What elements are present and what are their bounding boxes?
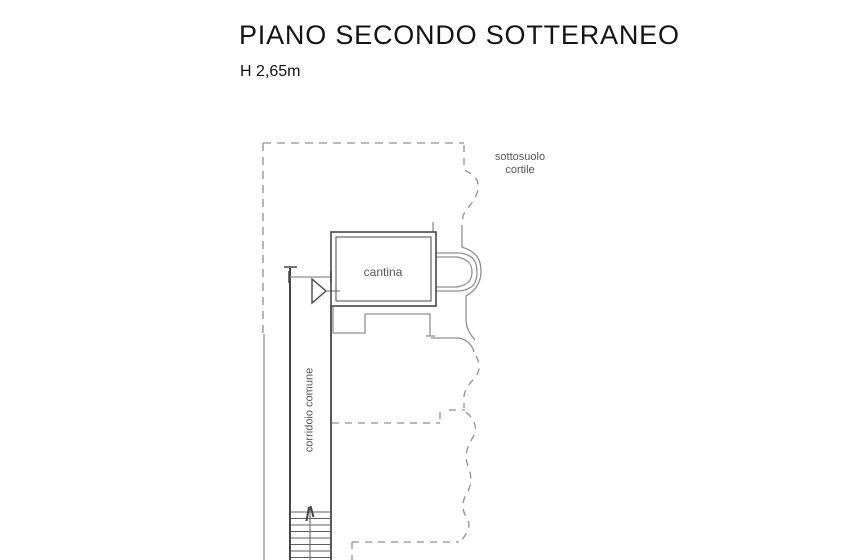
corridor-label-text: corridoio comune [304,368,317,452]
boundary-right-middle-wavy-dashed-line [464,356,479,408]
courtyard-label: sottosuolo cortile [460,151,580,177]
niche-inner-arc [457,257,472,287]
floor-plan-drawing [0,0,853,560]
door-swing-triangle [312,279,326,303]
floor-plan-page: PIANO SECONDO SOTTERANEO H 2,65m [0,0,853,560]
niche-bottom-wall [436,287,460,291]
stepped-wall-outline [333,307,430,336]
boundary-right-lower-wavy-dashed-line [461,412,475,541]
courtyard-label-line1: sottosuolo [460,151,580,164]
courtyard-label-line2: cortile [460,164,580,177]
cantina-label: cantina [333,266,433,279]
curved-wall-lower-right [431,338,474,352]
exterior-wall-around-niche [462,226,481,340]
staircase [291,506,330,560]
niche-top-wall [436,253,460,257]
